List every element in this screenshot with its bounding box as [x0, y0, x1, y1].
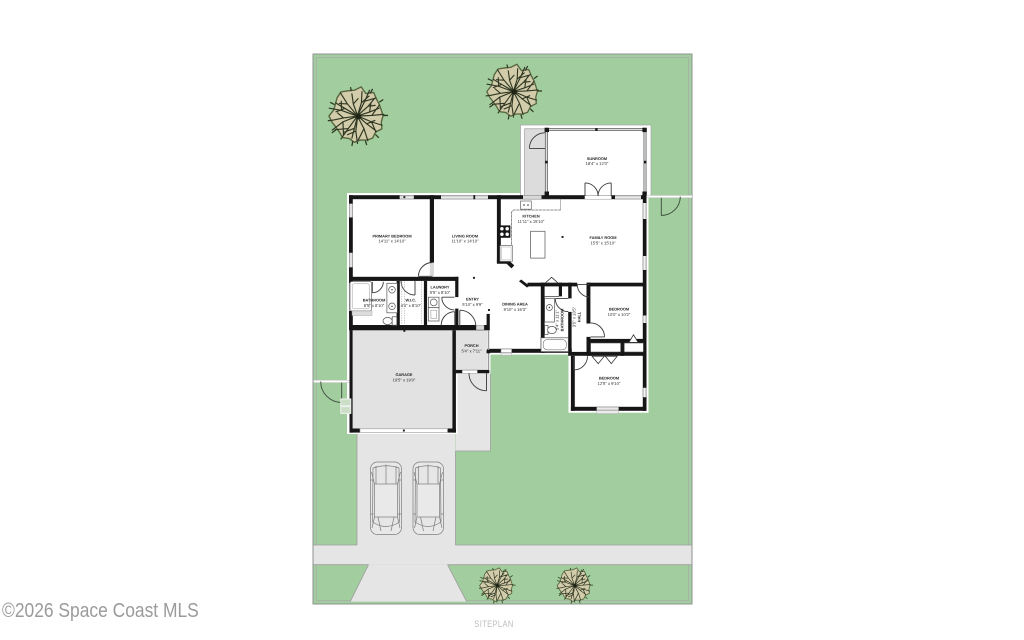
- svg-text:14'11" x 14'10": 14'11" x 14'10": [378, 239, 406, 244]
- svg-text:5'5" x 8'10": 5'5" x 8'10": [430, 290, 451, 295]
- svg-text:11'11" x 15'10": 11'11" x 15'10": [518, 219, 545, 224]
- svg-text:©2026 Space Coast MLS: ©2026 Space Coast MLS: [2, 600, 199, 623]
- svg-text:18'4" x 12'0": 18'4" x 12'0": [586, 161, 609, 166]
- svg-text:SITEPLAN: SITEPLAN: [474, 618, 513, 629]
- svg-text:HALL: HALL: [577, 311, 582, 322]
- svg-text:19'5" x 19'0": 19'5" x 19'0": [393, 377, 416, 382]
- svg-text:12'5" x 9'10": 12'5" x 9'10": [598, 381, 621, 386]
- svg-text:4'4" x 8'10": 4'4" x 8'10": [401, 303, 422, 308]
- svg-text:BATHROOM: BATHROOM: [560, 309, 565, 332]
- svg-text:9'10" x 16'3": 9'10" x 16'3": [504, 307, 527, 312]
- svg-text:15'5" x 15'10": 15'5" x 15'10": [590, 240, 616, 245]
- svg-text:10'0" x 10'2": 10'0" x 10'2": [608, 312, 631, 317]
- svg-text:5'4" x 11'1": 5'4" x 11'1": [554, 309, 559, 330]
- svg-text:3'5" x 13'5": 3'5" x 13'5": [571, 306, 576, 327]
- svg-text:5'4" x 7'11": 5'4" x 7'11": [461, 348, 482, 353]
- svg-text:11'10" x 14'10": 11'10" x 14'10": [451, 239, 479, 244]
- svg-text:5'10" x 9'9": 5'10" x 9'9": [462, 302, 483, 307]
- svg-text:8'5" x 8'10": 8'5" x 8'10": [364, 303, 385, 308]
